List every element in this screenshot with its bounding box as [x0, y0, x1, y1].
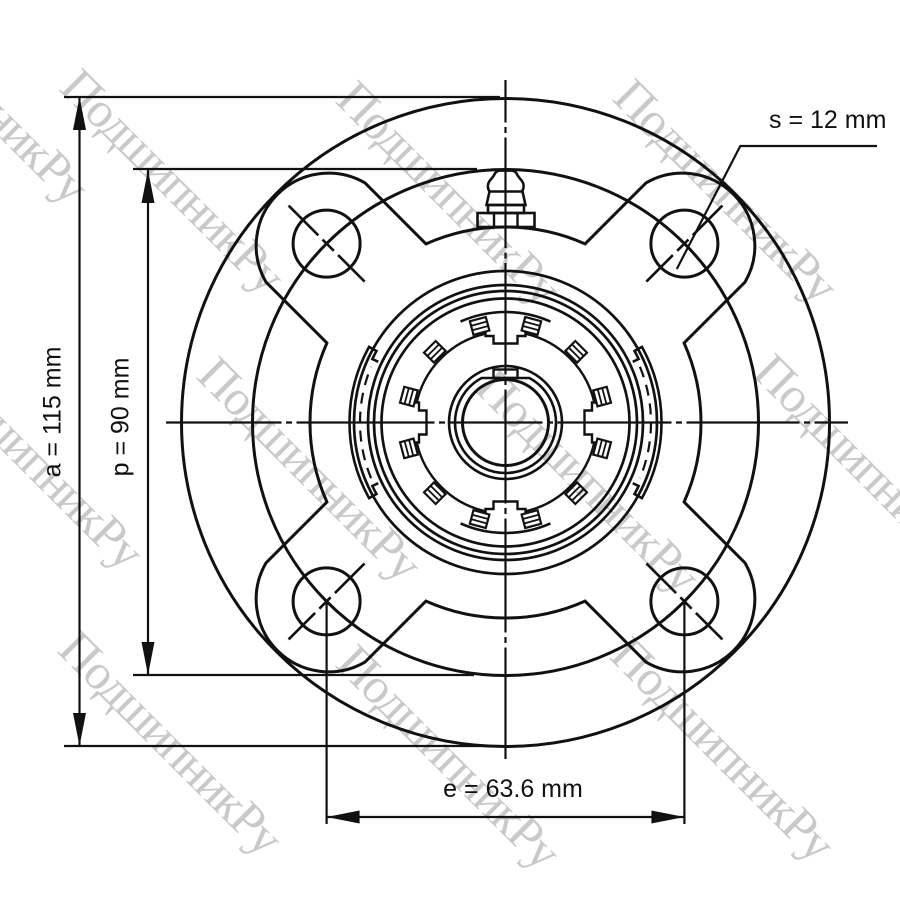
svg-text:a = 115 mm: a = 115 mm — [39, 347, 67, 478]
svg-text:p = 90 mm: p = 90 mm — [107, 358, 135, 477]
svg-text:s = 12 mm: s = 12 mm — [769, 106, 886, 134]
svg-text:e = 63.6 mm: e = 63.6 mm — [443, 775, 583, 803]
